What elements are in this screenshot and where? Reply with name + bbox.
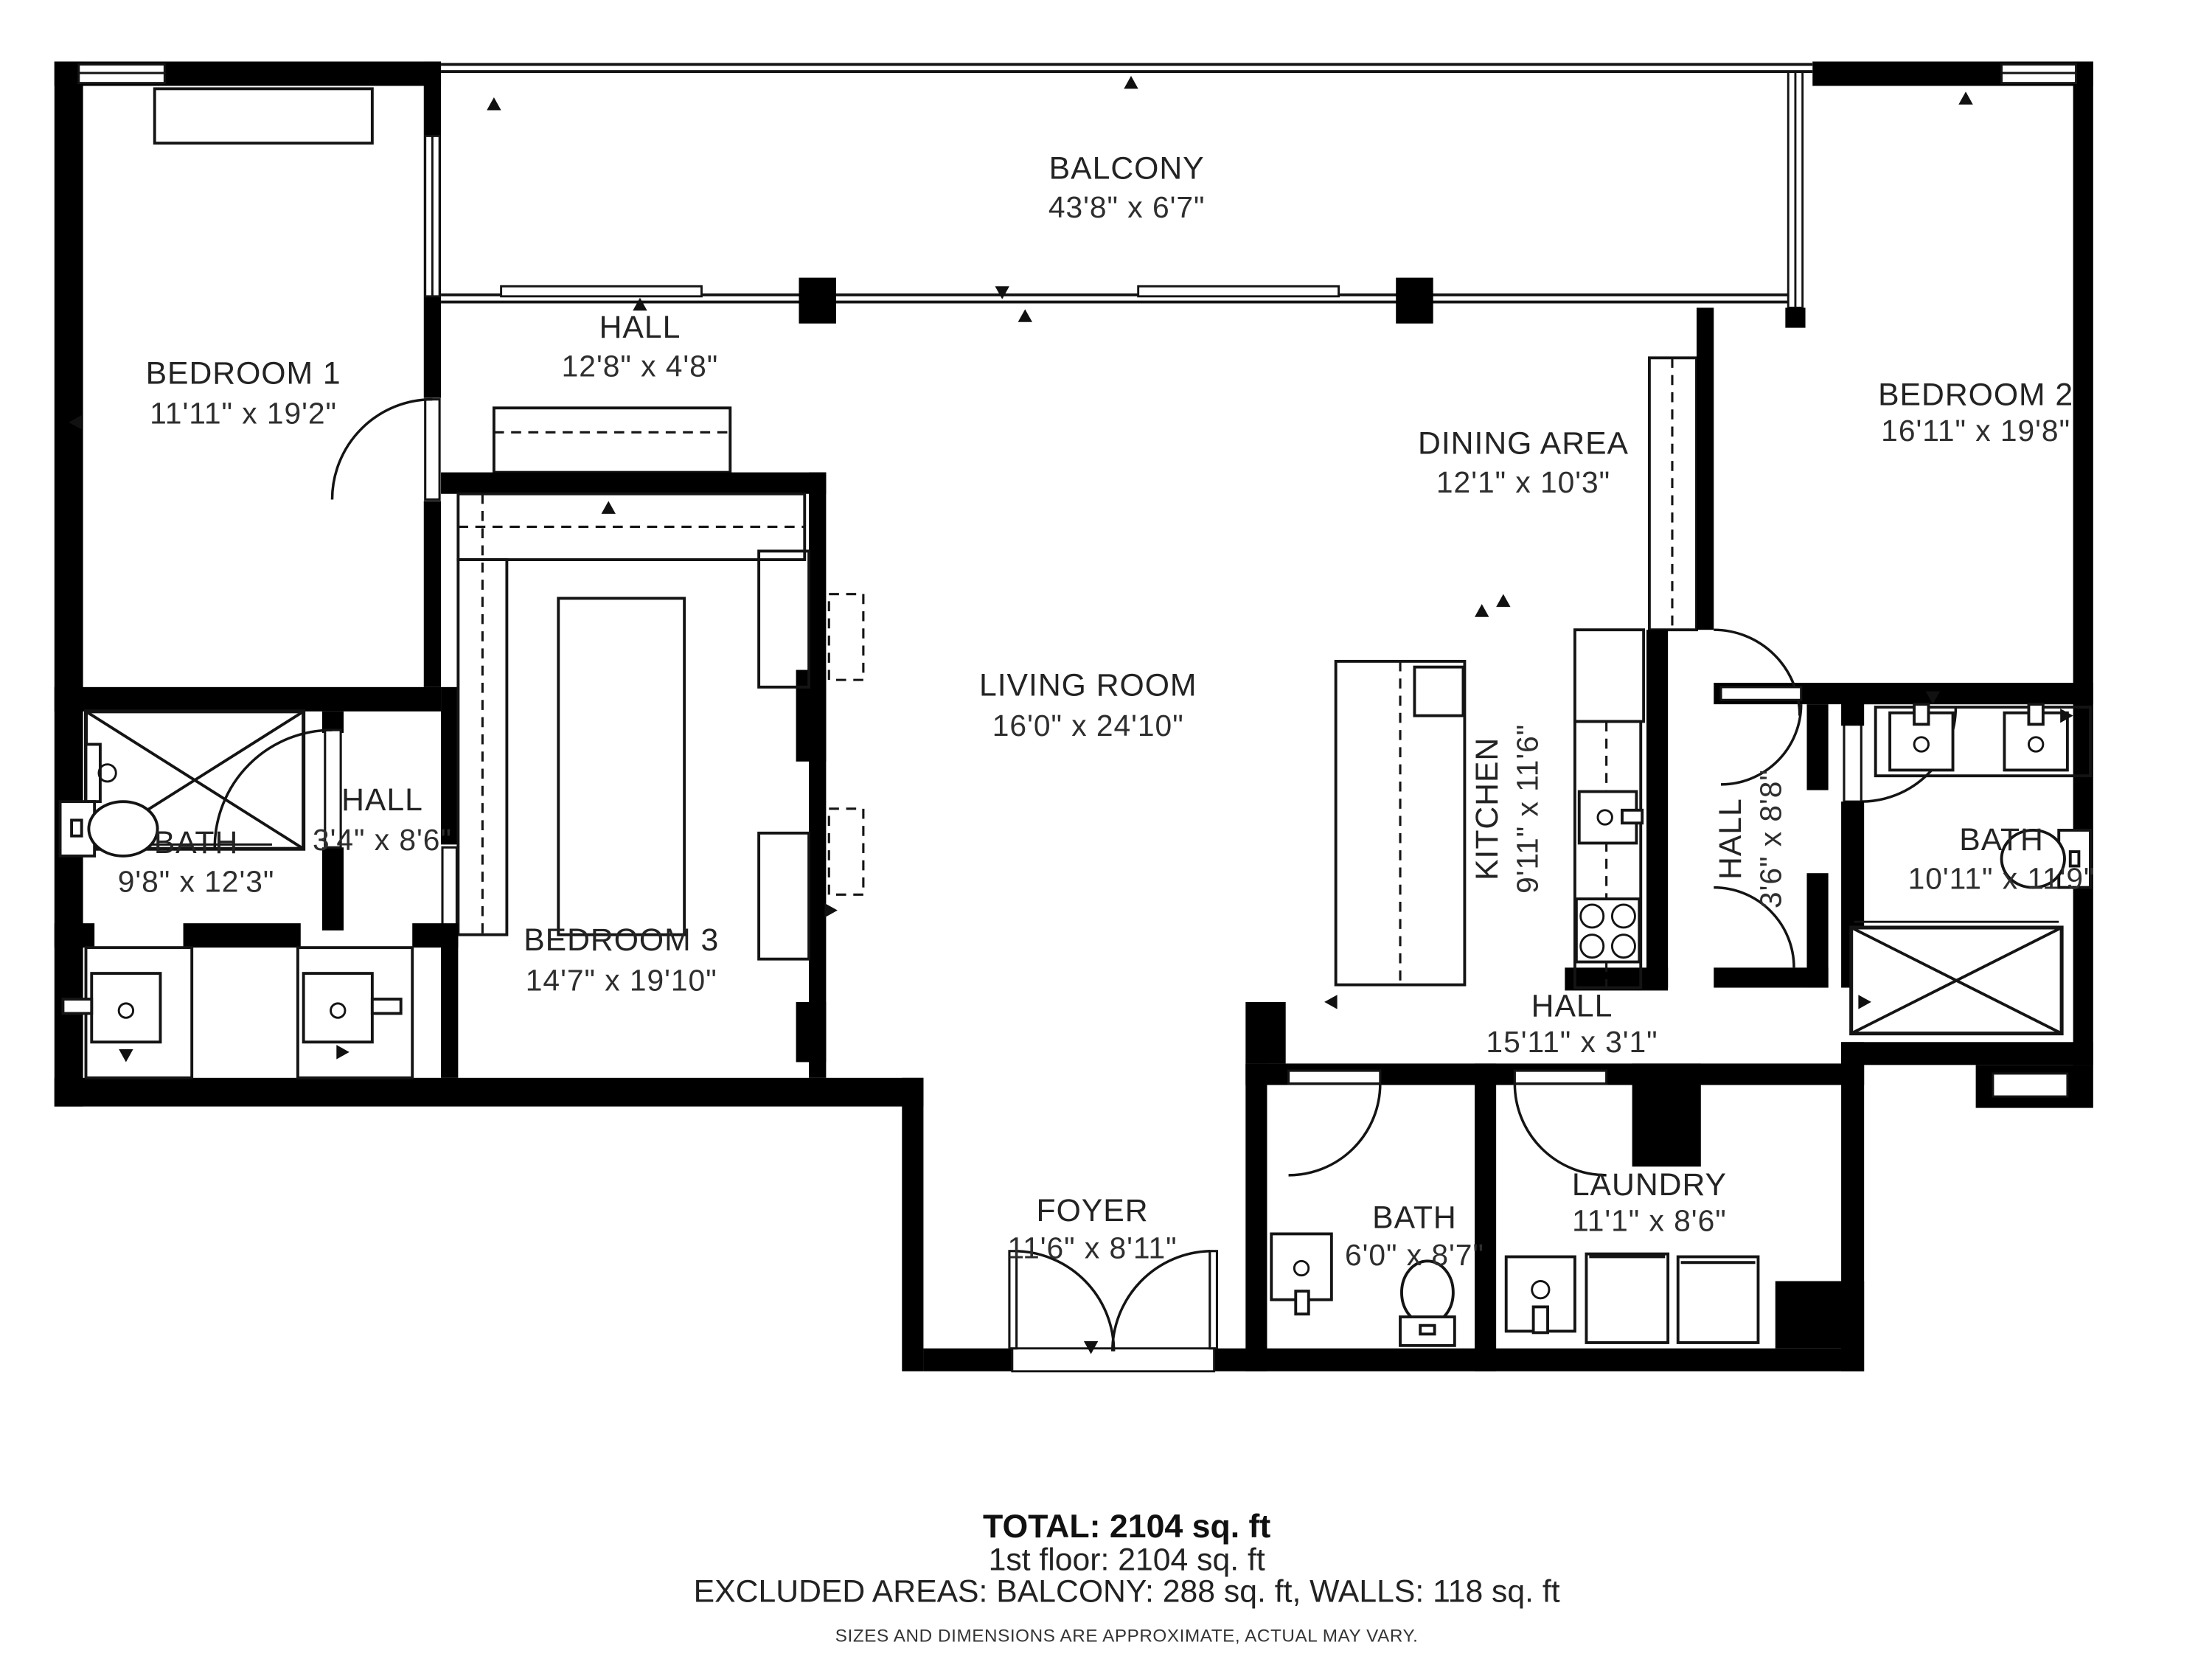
- vanity-master-right: [298, 947, 412, 1078]
- label-laundry: LAUNDRY: [1572, 1167, 1727, 1203]
- toilet-master: [60, 801, 158, 856]
- bed-bedroom3: [558, 598, 684, 934]
- label-living: LIVING ROOM: [979, 667, 1197, 703]
- foyer-entry-doors: [1009, 1251, 1217, 1371]
- bottom-right-notch: [1993, 1074, 2067, 1096]
- dims-bedroom2: 16'11" x 19'8": [1881, 414, 2070, 448]
- dims-living: 16'0" x 24'10": [992, 709, 1184, 742]
- window-bedroom1-top: [79, 64, 165, 83]
- dims-bedroom3: 14'7" x 19'10": [526, 963, 717, 997]
- dims-kitchen: 9'11" x 11'6": [1510, 724, 1544, 894]
- label-dining: DINING AREA: [1418, 425, 1629, 461]
- summary-excluded: EXCLUDED AREAS: BALCONY: 288 sq. ft, WAL…: [694, 1573, 1560, 1609]
- window-bedroom2-balcony: [1785, 72, 1805, 327]
- dims-balcony: 43'8" x 6'7": [1048, 190, 1206, 224]
- dims-bath3: 6'0" x 8'7": [1345, 1238, 1484, 1272]
- label-hall-small: HALL: [1713, 798, 1748, 880]
- label-bath2: BATH: [1959, 822, 2044, 858]
- door-laundry: [1514, 1071, 1606, 1175]
- door-bedroom3: [442, 847, 456, 928]
- label-hall-lower: HALL: [1531, 988, 1613, 1023]
- window-bedroom1-balcony: [425, 136, 439, 296]
- closet-bedroom3-top: [458, 494, 804, 560]
- label-balcony: BALCONY: [1049, 151, 1205, 187]
- label-hall-master: HALL: [341, 782, 423, 818]
- dims-bath2: 10'11" x 11'9": [1908, 862, 2096, 896]
- summary-disclaimer: SIZES AND DIMENSIONS ARE APPROXIMATE, AC…: [835, 1627, 1419, 1646]
- dims-hall-small: 3'6" x 8'8": [1754, 769, 1788, 908]
- floor-plan-page: BALCONY 43'8" x 6'7" BEDROOM 1 11'11" x …: [0, 0, 2212, 1659]
- stove: [1576, 899, 1639, 961]
- dims-hall-upper: 12'8" x 4'8": [562, 349, 719, 383]
- closet-bedroom1: [155, 88, 372, 143]
- vanity-bath2: [1876, 704, 2090, 776]
- label-bath3: BATH: [1372, 1200, 1457, 1236]
- kitchen-sink: [1579, 792, 1642, 844]
- kitchen-island: [1336, 661, 1465, 985]
- floor-plan: BALCONY 43'8" x 6'7" BEDROOM 1 11'11" x …: [0, 0, 2212, 1659]
- label-bedroom2: BEDROOM 2: [1878, 377, 2073, 412]
- closet-dining: [1649, 358, 1697, 630]
- label-hall-upper: HALL: [599, 310, 681, 345]
- dims-bedroom1: 11'11" x 19'2": [150, 397, 337, 431]
- summary-floor: 1st floor: 2104 sq. ft: [989, 1543, 1265, 1578]
- label-bedroom1: BEDROOM 1: [146, 355, 341, 391]
- window-bedroom2-top: [2002, 64, 2076, 83]
- fridge: [1575, 630, 1644, 721]
- summary-block: TOTAL: 2104 sq. ft 1st floor: 2104 sq. f…: [694, 1509, 1560, 1646]
- laundry-sink: [1506, 1256, 1575, 1332]
- dims-hall-lower: 15'11" x 3'1": [1486, 1025, 1658, 1059]
- cabinet-living-wall: [829, 594, 863, 895]
- bedroom2-left-wall: [1697, 307, 2093, 704]
- door-bedroom1: [332, 400, 439, 500]
- label-bath-master: BATH: [154, 825, 239, 860]
- label-kitchen: KITCHEN: [1470, 737, 1505, 880]
- label-bedroom3: BEDROOM 3: [524, 922, 719, 958]
- dims-foyer: 11'6" x 8'11": [1007, 1231, 1177, 1265]
- label-foyer: FOYER: [1037, 1193, 1149, 1228]
- summary-total: TOTAL: 2104 sq. ft: [983, 1509, 1270, 1545]
- dims-laundry: 11'1" x 8'6": [1572, 1204, 1727, 1238]
- sink-bath3: [1271, 1234, 1332, 1314]
- washer: [1586, 1254, 1668, 1343]
- door-bath3: [1289, 1071, 1380, 1175]
- dims-dining: 12'1" x 10'3": [1436, 465, 1610, 499]
- closet-bedroom3-left: [458, 494, 507, 935]
- balcony-railing: [441, 64, 1812, 72]
- dryer: [1678, 1256, 1759, 1342]
- shower-bath2: [1851, 922, 2062, 1033]
- dims-hall-master: 3'4" x 8'6": [313, 823, 452, 857]
- toilet-bath3: [1400, 1261, 1455, 1346]
- dims-bath-master: 9'8" x 12'3": [118, 864, 275, 898]
- closet-upper-hall: [494, 408, 730, 472]
